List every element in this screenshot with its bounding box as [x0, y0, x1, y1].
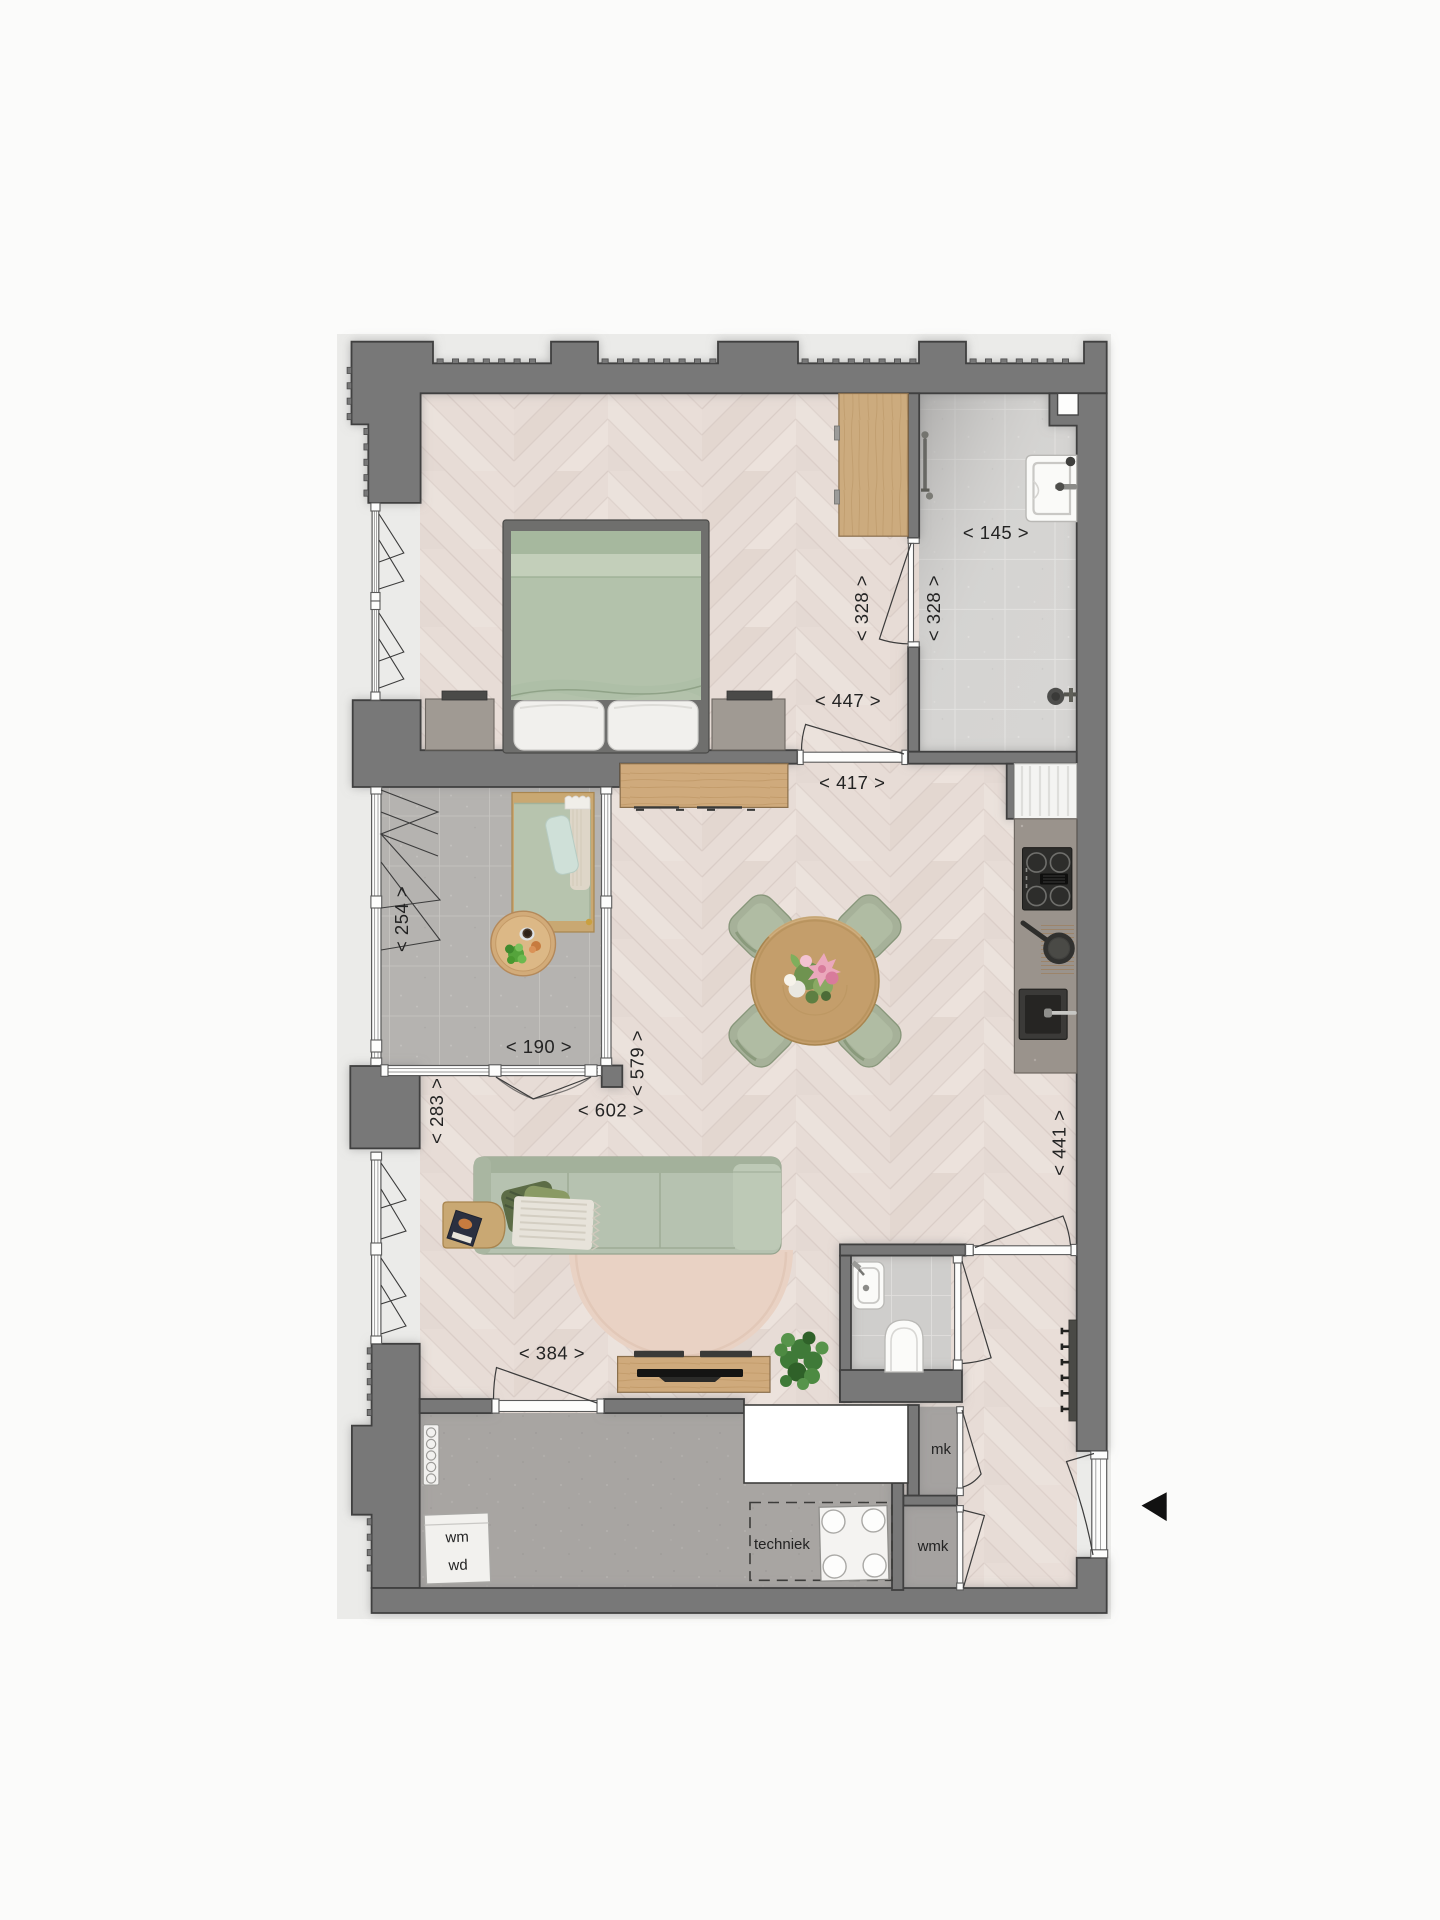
svg-text:< 145 >: < 145 > [963, 522, 1029, 543]
svg-text:wd: wd [447, 1557, 468, 1575]
svg-text:< 328 >: < 328 > [923, 575, 944, 641]
svg-text:mk: mk [931, 1441, 951, 1458]
svg-text:< 447 >: < 447 > [815, 690, 881, 711]
svg-text:< 602 >: < 602 > [578, 1100, 644, 1121]
svg-text:< 283 >: < 283 > [426, 1078, 447, 1144]
svg-text:< 441 >: < 441 > [1049, 1109, 1070, 1175]
svg-text:< 579 >: < 579 > [627, 1030, 648, 1096]
svg-text:< 190 >: < 190 > [506, 1036, 572, 1057]
svg-text:< 417 >: < 417 > [819, 772, 885, 793]
svg-text:< 384 >: < 384 > [519, 1343, 585, 1364]
svg-text:wm: wm [444, 1529, 469, 1547]
svg-text:< 254 >: < 254 > [391, 886, 412, 952]
svg-text:wmk: wmk [917, 1538, 949, 1555]
svg-text:< 328 >: < 328 > [851, 575, 872, 641]
svg-text:techniek: techniek [754, 1536, 810, 1553]
